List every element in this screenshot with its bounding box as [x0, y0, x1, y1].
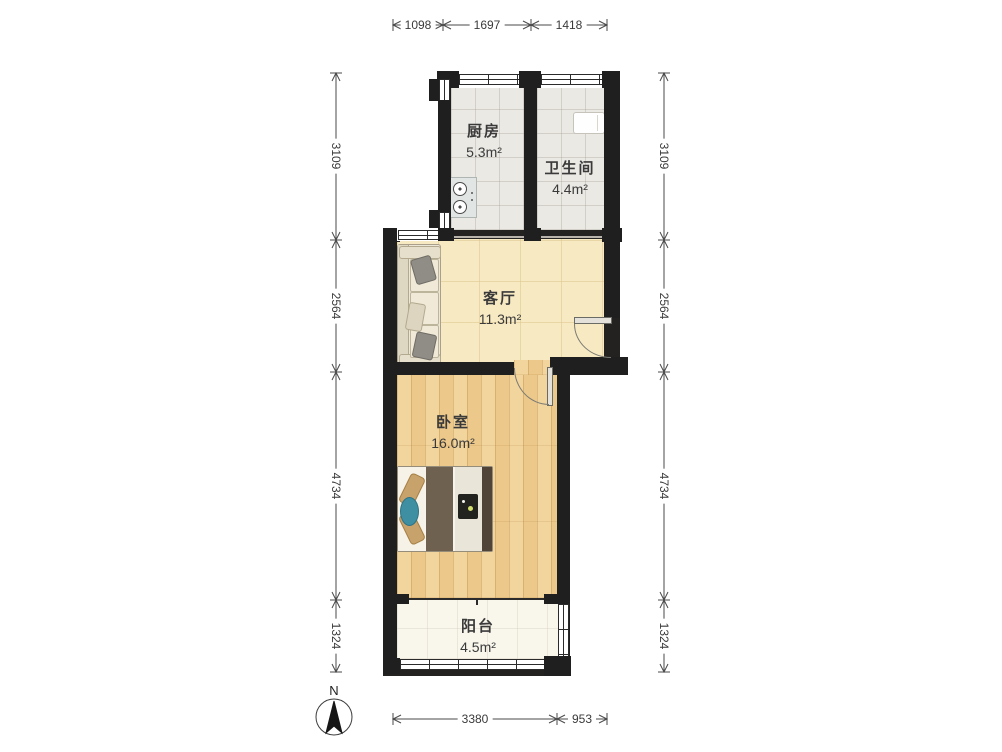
dim-right-1: 3109: [657, 139, 671, 174]
dim-bottom-1: 3380: [458, 712, 493, 726]
compass-north-label: N: [329, 683, 338, 698]
dim-left-3: 4734: [329, 469, 343, 504]
dim-left-1: 3109: [329, 139, 343, 174]
dim-left-4: 1324: [329, 619, 343, 654]
floor-plan-canvas: 厨房 5.3m² 卫生间 4.4m² 客厅 11.3m² 卧室 16.0m² 阳…: [0, 0, 1002, 752]
dimension-lines-layer: [0, 0, 1002, 752]
dim-right-4: 1324: [657, 619, 671, 654]
dim-left-2: 2564: [329, 289, 343, 324]
dim-right-3: 4734: [657, 469, 671, 504]
dim-top-1: 1098: [401, 18, 436, 32]
dim-bottom-2: 953: [568, 712, 596, 726]
dim-top-3: 1418: [552, 18, 587, 32]
dim-top-2: 1697: [470, 18, 505, 32]
dim-right-2: 2564: [657, 289, 671, 324]
north-arrow-icon: [316, 699, 352, 735]
